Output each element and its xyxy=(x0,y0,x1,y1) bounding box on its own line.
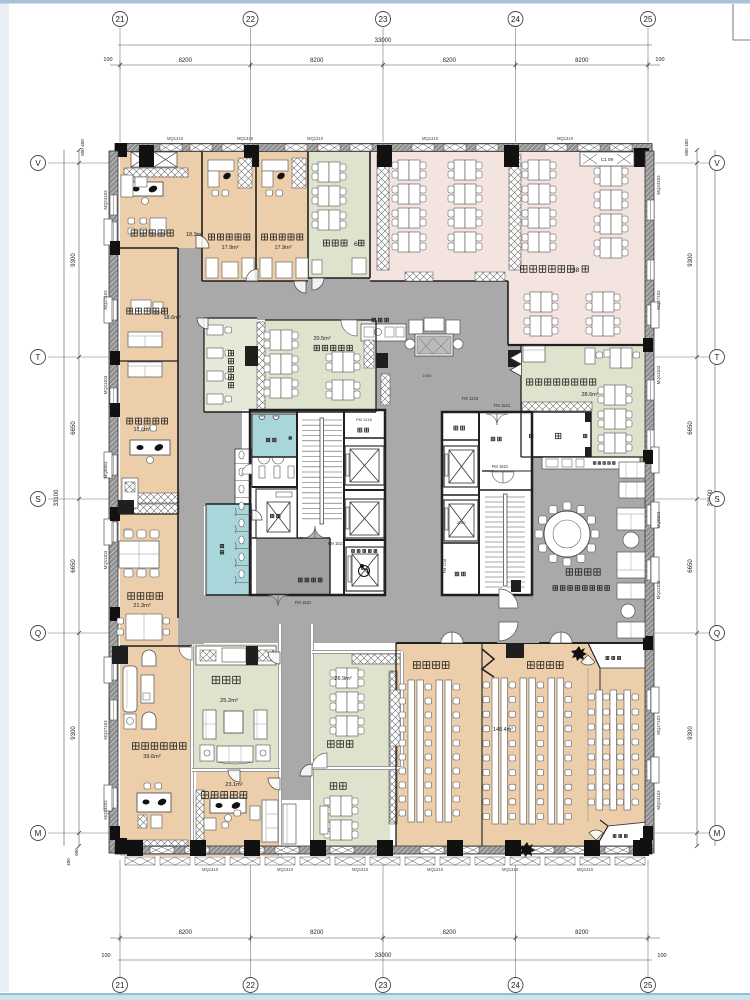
svg-text:MQ24103: MQ24103 xyxy=(103,800,108,820)
svg-text:400: 400 xyxy=(66,858,71,866)
svg-text:MQ11103: MQ11103 xyxy=(103,375,108,394)
svg-text:MQ27103: MQ27103 xyxy=(656,290,661,310)
svg-text:MQ8303: MQ8303 xyxy=(656,511,661,528)
svg-text:18.6m²: 18.6m² xyxy=(163,315,180,321)
svg-text:S: S xyxy=(35,495,40,504)
svg-text:8200: 8200 xyxy=(575,930,589,936)
svg-text:33100: 33100 xyxy=(54,489,60,506)
svg-text:600: 600 xyxy=(74,848,79,856)
svg-text:MQ11103: MQ11103 xyxy=(103,550,108,569)
svg-text:21: 21 xyxy=(116,981,125,990)
svg-text:T: T xyxy=(36,353,41,362)
svg-text:MQ1310: MQ1310 xyxy=(502,867,519,872)
svg-text:400: 400 xyxy=(684,139,689,147)
svg-text:21: 21 xyxy=(116,15,125,24)
svg-text:MQ8303: MQ8303 xyxy=(103,461,108,478)
svg-text:MQ1310: MQ1310 xyxy=(557,136,574,141)
svg-text:26.9m²: 26.9m² xyxy=(334,676,351,682)
svg-text:100: 100 xyxy=(657,953,666,959)
svg-text:38: 38 xyxy=(572,267,580,274)
svg-text:20.5m²: 20.5m² xyxy=(313,336,330,342)
svg-text:6650: 6650 xyxy=(71,421,77,435)
svg-text:MQ1310: MQ1310 xyxy=(307,136,324,141)
svg-text:MQ1310: MQ1310 xyxy=(422,136,439,141)
svg-text:V: V xyxy=(35,159,41,168)
svg-text:FM 1118: FM 1118 xyxy=(443,559,447,573)
svg-text:39.6m²: 39.6m² xyxy=(143,754,161,760)
svg-text:24: 24 xyxy=(511,15,520,24)
svg-text:MQ27103: MQ27103 xyxy=(103,720,108,740)
svg-text:23.1m²: 23.1m² xyxy=(225,782,243,788)
svg-text:MQ1310: MQ1310 xyxy=(427,867,444,872)
svg-text:100: 100 xyxy=(101,953,110,959)
svg-text:C1 09: C1 09 xyxy=(601,157,614,162)
svg-text:9300: 9300 xyxy=(688,253,694,267)
svg-text:17.6m²: 17.6m² xyxy=(133,427,150,433)
svg-text:Q: Q xyxy=(35,629,41,638)
svg-text:T: T xyxy=(715,353,720,362)
svg-text:6650: 6650 xyxy=(688,421,694,435)
svg-text:8200: 8200 xyxy=(575,58,589,64)
svg-text:22: 22 xyxy=(246,15,255,24)
svg-text:8200: 8200 xyxy=(179,930,193,936)
svg-text:8200: 8200 xyxy=(310,930,324,936)
svg-text:FM 1218: FM 1218 xyxy=(462,396,479,401)
svg-text:8200: 8200 xyxy=(310,58,324,64)
svg-text:17.9m²: 17.9m² xyxy=(274,245,291,251)
svg-text:9300: 9300 xyxy=(688,726,694,740)
svg-text:MQ1310: MQ1310 xyxy=(352,867,369,872)
svg-text:FM 1521: FM 1521 xyxy=(494,403,511,408)
svg-text:28.6m²: 28.6m² xyxy=(581,392,598,398)
svg-text:V: V xyxy=(714,159,720,168)
svg-text:33000: 33000 xyxy=(375,953,392,959)
svg-text:MQ1310: MQ1310 xyxy=(277,867,294,872)
svg-text:100: 100 xyxy=(655,57,664,63)
svg-text:6: 6 xyxy=(354,241,358,248)
svg-text:MQ24103: MQ24103 xyxy=(656,175,661,195)
svg-text:MQ27103: MQ27103 xyxy=(103,290,108,310)
svg-text:MQ1310: MQ1310 xyxy=(167,136,184,141)
svg-text:MQ11103: MQ11103 xyxy=(656,365,661,384)
svg-text:8200: 8200 xyxy=(443,930,457,936)
svg-text:MQ27103: MQ27103 xyxy=(656,715,661,735)
svg-text:S: S xyxy=(714,495,719,504)
svg-text:6650: 6650 xyxy=(71,559,77,573)
svg-text:22: 22 xyxy=(246,981,255,990)
svg-text:FM 1218: FM 1218 xyxy=(356,417,373,422)
svg-text:9300: 9300 xyxy=(71,253,77,267)
svg-text:18.3m²: 18.3m² xyxy=(186,232,203,238)
svg-text:MQ1310: MQ1310 xyxy=(577,867,594,872)
svg-text:17.9m²: 17.9m² xyxy=(221,245,238,251)
svg-text:MQ24103: MQ24103 xyxy=(656,790,661,810)
svg-text:M: M xyxy=(35,829,42,838)
svg-text:6650: 6650 xyxy=(688,559,694,573)
svg-text:1000: 1000 xyxy=(423,373,433,378)
svg-text:600: 600 xyxy=(684,148,689,156)
svg-text:FM 1521: FM 1521 xyxy=(328,541,345,546)
svg-text:148.4m²: 148.4m² xyxy=(493,727,513,733)
svg-text:FM 1521: FM 1521 xyxy=(295,600,312,605)
svg-text:24: 24 xyxy=(511,981,520,990)
svg-text:MQ11103: MQ11103 xyxy=(656,580,661,599)
svg-text:21.3m²: 21.3m² xyxy=(133,603,151,609)
svg-text:MQ1310: MQ1310 xyxy=(202,867,219,872)
svg-text:Q: Q xyxy=(714,629,720,638)
svg-text:MQ1310: MQ1310 xyxy=(237,136,254,141)
svg-text:MQ24103: MQ24103 xyxy=(103,190,108,210)
svg-text:2200: 2200 xyxy=(457,520,467,525)
svg-text:23: 23 xyxy=(379,15,388,24)
svg-text:100: 100 xyxy=(103,57,112,63)
svg-text:FM 1521: FM 1521 xyxy=(492,464,509,469)
svg-text:M: M xyxy=(714,829,721,838)
svg-text:33000: 33000 xyxy=(375,38,392,44)
svg-text:25.2m²: 25.2m² xyxy=(220,698,238,704)
svg-text:600: 600 xyxy=(80,148,85,156)
svg-text:400: 400 xyxy=(80,139,85,147)
svg-text:9300: 9300 xyxy=(71,726,77,740)
svg-text:25: 25 xyxy=(644,15,653,24)
svg-text:8200: 8200 xyxy=(443,58,457,64)
svg-text:25: 25 xyxy=(644,981,653,990)
svg-text:23: 23 xyxy=(379,981,388,990)
svg-text:8200: 8200 xyxy=(179,58,193,64)
